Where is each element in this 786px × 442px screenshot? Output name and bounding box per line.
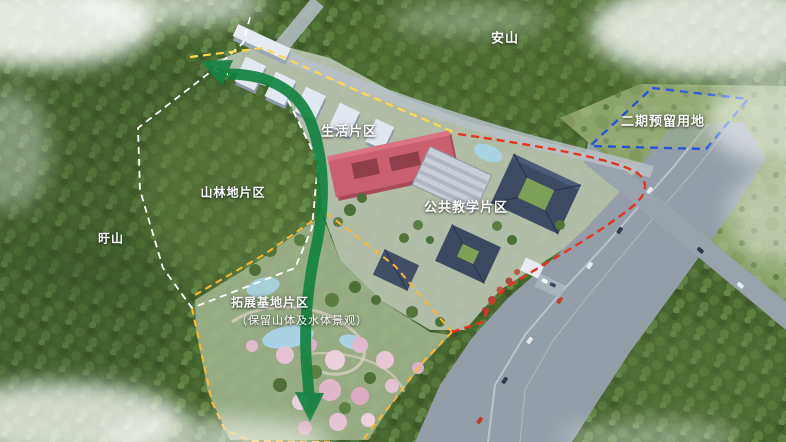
label-phase2-reserved-land: 二期预留用地 (621, 111, 705, 130)
scene-svg (0, 0, 786, 442)
label-mountain-forest-zone: 山林地片区 (200, 184, 265, 201)
label-west-mountain: 旴山 (98, 230, 124, 247)
label-expansion-base-zone: 拓展基地片区 (231, 294, 309, 311)
label-expansion-base-note: （保留山体及水体景观） (236, 312, 368, 328)
masterplan-rendering: 安山 二期预留用地 生活片区 山林地片区 旴山 公共教学片区 拓展基地片区 （保… (0, 0, 786, 442)
label-living-zone: 生活片区 (321, 121, 377, 140)
label-public-teaching-zone: 公共教学片区 (424, 197, 508, 216)
label-north-mountain: 安山 (491, 28, 519, 47)
